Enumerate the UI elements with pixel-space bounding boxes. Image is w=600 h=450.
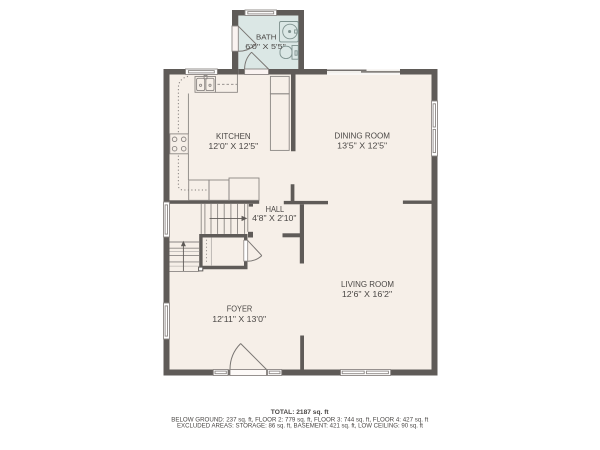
svg-text:KITCHEN: KITCHEN: [216, 132, 251, 141]
svg-text:DINING ROOM: DINING ROOM: [334, 132, 390, 141]
svg-text:BATH: BATH: [256, 32, 276, 41]
svg-text:FOYER: FOYER: [227, 305, 253, 314]
svg-text:12'11" X 13'0": 12'11" X 13'0": [212, 315, 266, 324]
svg-text:EXCLUDED AREAS: STORAGE: 86 sq: EXCLUDED AREAS: STORAGE: 86 sq. ft, BASE…: [177, 423, 423, 430]
svg-text:HALL: HALL: [266, 205, 285, 214]
svg-text:12'6" X 16'2": 12'6" X 16'2": [342, 290, 392, 299]
svg-text:13'5" X 12'5": 13'5" X 12'5": [337, 141, 387, 150]
svg-text:TOTAL: 2187 sq. ft: TOTAL: 2187 sq. ft: [271, 409, 330, 416]
svg-text:6'0" X 5'5": 6'0" X 5'5": [245, 42, 286, 51]
svg-text:12'0" X 12'5": 12'0" X 12'5": [208, 142, 258, 151]
svg-text:4'8" X 2'10": 4'8" X 2'10": [252, 214, 297, 223]
svg-text:LIVING ROOM: LIVING ROOM: [341, 280, 394, 289]
